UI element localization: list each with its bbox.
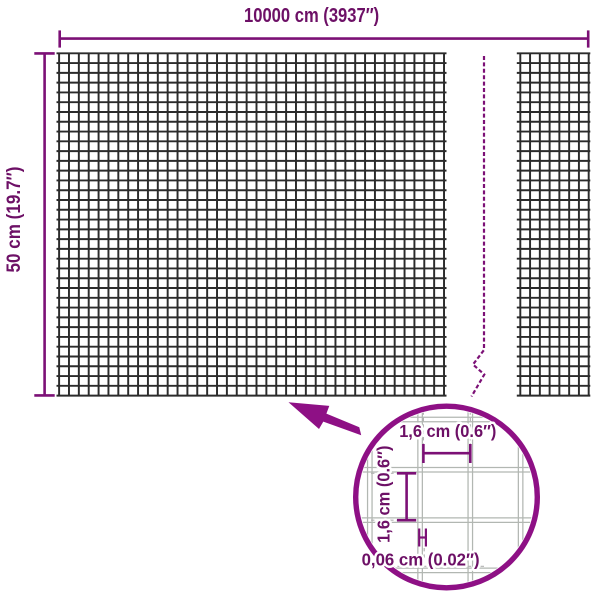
svg-text:1,6 cm (0.6″): 1,6 cm (0.6″) [374, 446, 394, 543]
svg-text:10000 cm (3937″): 10000 cm (3937″) [244, 5, 379, 27]
svg-text:1,6 cm (0.6″): 1,6 cm (0.6″) [399, 421, 496, 441]
svg-text:0,06 cm (0.02″): 0,06 cm (0.02″) [362, 549, 480, 569]
svg-text:50 cm (19.7″): 50 cm (19.7″) [4, 167, 25, 273]
